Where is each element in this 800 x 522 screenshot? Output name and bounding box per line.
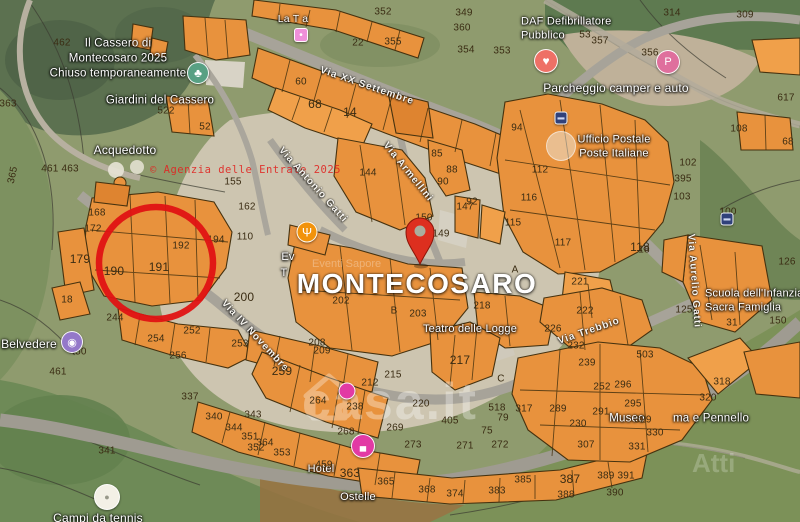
property-pin-marker[interactable] xyxy=(406,218,434,269)
red-circle-annotation xyxy=(99,207,213,319)
map-canvas[interactable]: MONTECOSARO © Agenzia delle Entrate 2025… xyxy=(0,0,800,522)
annotation-layer xyxy=(0,0,800,522)
